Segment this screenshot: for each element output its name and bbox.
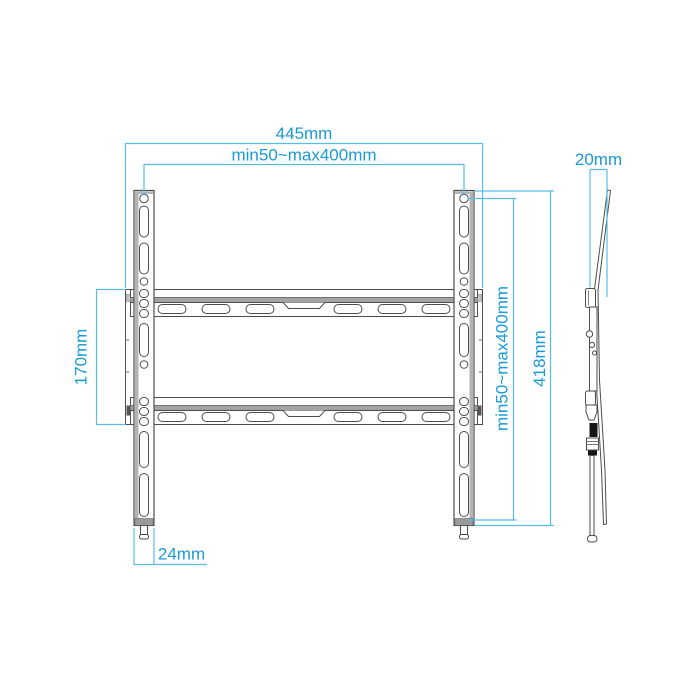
side-screw-cap bbox=[588, 536, 598, 543]
dim-depth-label: 20mm bbox=[575, 150, 622, 169]
wall-rail-top bbox=[131, 290, 478, 317]
dim-wall-plate-height-line bbox=[97, 290, 127, 425]
dim-overall-width-label: 445mm bbox=[276, 124, 333, 143]
dim-bracket-height-label: 418mm bbox=[530, 330, 549, 387]
side-lock-block bbox=[590, 423, 598, 437]
tv-bracket-rail-left bbox=[134, 191, 154, 540]
side-rail-profile bbox=[590, 307, 598, 391]
side-hole-3 bbox=[593, 351, 597, 355]
side-hole-1 bbox=[586, 331, 592, 337]
side-hole-2 bbox=[589, 342, 594, 347]
dim-wall-plate-height-label: 170mm bbox=[72, 329, 91, 386]
wall-mount-dimension-diagram: 445mm min50~max400mm 170mm 24mm min50~ma… bbox=[0, 0, 700, 700]
dim-hole-width-line bbox=[144, 165, 464, 196]
dim-hole-width-label: min50~max400mm bbox=[231, 146, 376, 165]
wall-rail-bottom bbox=[131, 398, 478, 425]
diagram-canvas: 445mm min50~max400mm 170mm 24mm min50~ma… bbox=[0, 0, 700, 700]
tv-bracket-rail-right bbox=[454, 191, 474, 540]
side-bottom-hook bbox=[586, 391, 596, 405]
side-locking-screw bbox=[590, 456, 594, 536]
front-view bbox=[126, 191, 483, 540]
side-clamp bbox=[587, 438, 599, 450]
dim-hole-height-label: min50~max400mm bbox=[493, 286, 512, 431]
dim-arm-width-label: 24mm bbox=[158, 545, 205, 564]
side-hook-taper bbox=[586, 405, 597, 420]
side-top-hook bbox=[586, 289, 596, 308]
side-clamp-band bbox=[588, 451, 597, 456]
dim-overall-width-line bbox=[126, 144, 483, 289]
